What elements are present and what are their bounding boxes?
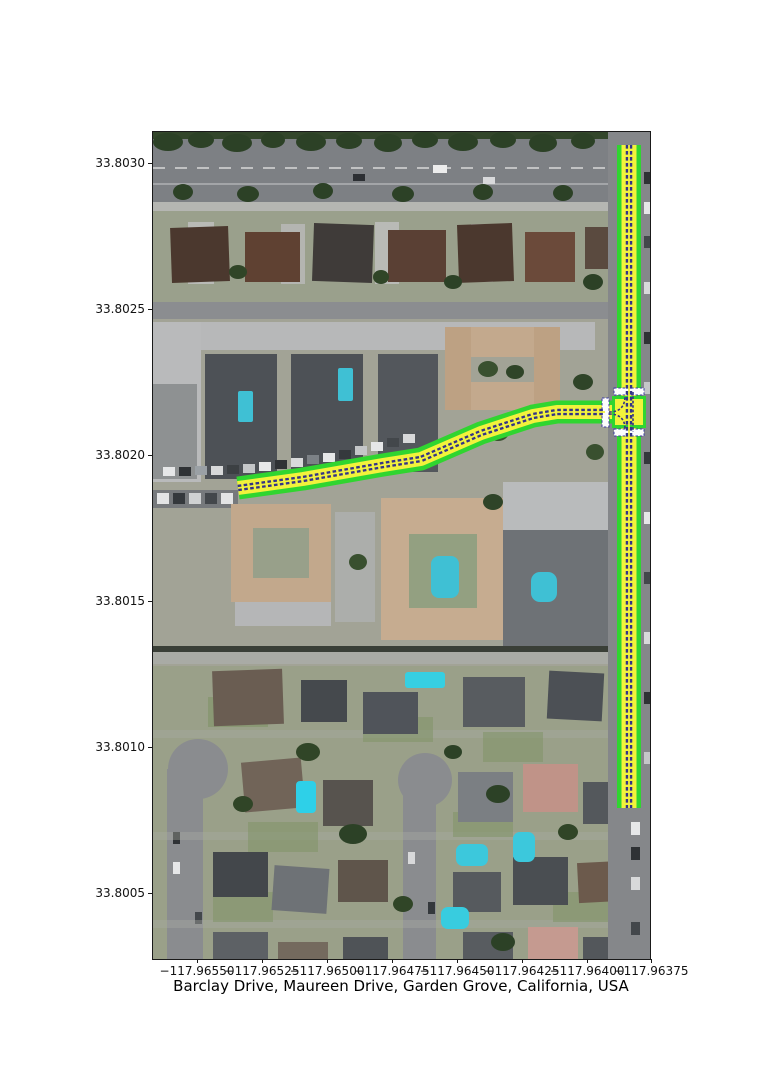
figure-title: Barclay Drive, Maureen Drive, Garden Gro…: [152, 977, 650, 996]
y-tick-label: 33.8025: [83, 302, 145, 316]
alley-strip: [153, 646, 615, 664]
y-tick-label: 33.8030: [83, 156, 145, 170]
y-tick-mark: [148, 747, 152, 748]
figure-canvas: 33.8030 33.8025 33.8020 33.8015 33.8010 …: [0, 0, 779, 1080]
x-tick-mark: [392, 959, 393, 963]
x-tick-mark: [262, 959, 263, 963]
y-tick-label: 33.8005: [83, 886, 145, 900]
x-tick-mark: [587, 959, 588, 963]
x-tick-mark: [522, 959, 523, 963]
x-tick-mark: [197, 959, 198, 963]
y-tick-label: 33.8010: [83, 740, 145, 754]
cross-street-upper: [153, 302, 615, 319]
y-tick-mark: [148, 601, 152, 602]
y-tick-mark: [148, 309, 152, 310]
y-tick-label: 33.8015: [83, 594, 145, 608]
map-plot-area: [152, 131, 651, 960]
y-tick-mark: [148, 893, 152, 894]
y-tick-label: 33.8020: [83, 448, 145, 462]
x-tick-mark: [327, 959, 328, 963]
x-tick-label: −117.96375: [611, 964, 691, 978]
y-tick-mark: [148, 163, 152, 164]
aerial-imagery: [153, 132, 650, 959]
x-tick-mark: [457, 959, 458, 963]
y-tick-mark: [148, 455, 152, 456]
x-tick-mark: [651, 959, 652, 963]
